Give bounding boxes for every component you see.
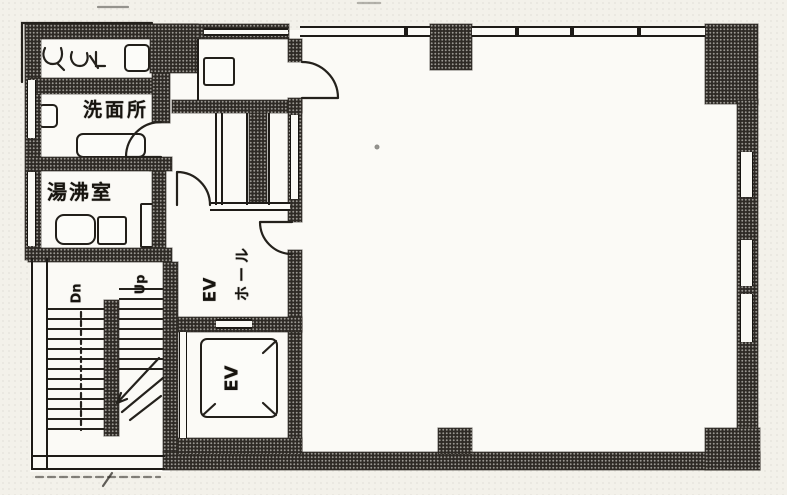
pillar-bottom-right-corner [705,428,760,470]
room-label-kitchenette: 湯沸室 [30,176,130,204]
elevator-door [216,319,252,329]
stair-outer-line-2 [46,258,48,470]
vent-slot-closet [204,28,288,36]
kitchenette-label-text: 湯沸室 [47,176,113,205]
washroom-counter [76,133,146,158]
wall-stair-ev [163,262,178,452]
wall-washroom-kitchenette [28,157,150,171]
evhall-ev-text: EV [200,278,220,303]
duct-line-4 [268,113,270,205]
closet-fixture [203,57,235,86]
stair-outer-line-1 [31,258,33,470]
pillar-top-right-corner [705,24,758,104]
closet-left-line [197,39,199,100]
wall-washroom-kitchenette-corner [150,157,172,171]
wall-kitchenette-right [152,171,166,251]
toilet-stall-fixture [124,44,150,72]
window-mullion [637,26,641,37]
washroom-label-text: 洗面所 [83,95,149,122]
duct-line-3 [246,113,248,205]
window-top-2 [472,26,705,37]
elevator-side-wall [179,332,187,438]
wall-kitchenette-stair [28,248,172,262]
stair-steps-down-flight [48,308,104,434]
wall-bottom [163,452,760,470]
window-right-1 [740,152,753,197]
stair-label-up: Up [126,264,156,304]
stair-label-down: Dn [62,274,92,312]
room-label-washroom: 洗面所 [70,95,162,122]
shaft-cavity [290,115,299,199]
window-mullion [404,26,408,37]
stair-bottom-line-1 [31,455,165,457]
west-wall-upper [288,39,302,62]
stair-bottom-line-2 [31,468,165,470]
duct-line-2 [221,113,223,205]
stair-down-text: Dn [69,283,84,303]
stair-up-text: Up [134,274,149,294]
washroom-toilet-fixture [38,104,58,128]
duct-divider [249,113,267,205]
room-label-evhall-hall: ホール [224,228,258,316]
window-top-1 [300,26,430,37]
evhall-hall-text: ホール [231,243,252,300]
wall-toilet-washroom [30,78,162,94]
west-wall-lower [288,250,302,452]
wall-below-closet [172,100,302,113]
room-label-elevator: EV [212,354,252,402]
floor-plan: 洗面所 湯沸室 EV ホール EV Dn Up [0,0,787,495]
room-label-evhall-ev: EV [192,264,228,316]
kitchenette-sink-counter [55,214,96,245]
window-mullion [570,26,574,37]
window-right-2 [740,240,753,286]
window-left-1 [27,80,36,138]
pillar-top-a [150,24,198,73]
pillar-bottom [438,428,472,454]
duct-line-1 [215,113,217,205]
ground-tick [103,473,112,486]
elevator-label-text: EV [221,365,242,391]
stair-center-wall [104,300,119,436]
elevator-rear-wall [178,438,302,454]
kitchenette-counter [97,216,127,245]
window-mullion [515,26,519,37]
window-right-3 [740,294,753,342]
pillar-top-b [430,24,472,70]
